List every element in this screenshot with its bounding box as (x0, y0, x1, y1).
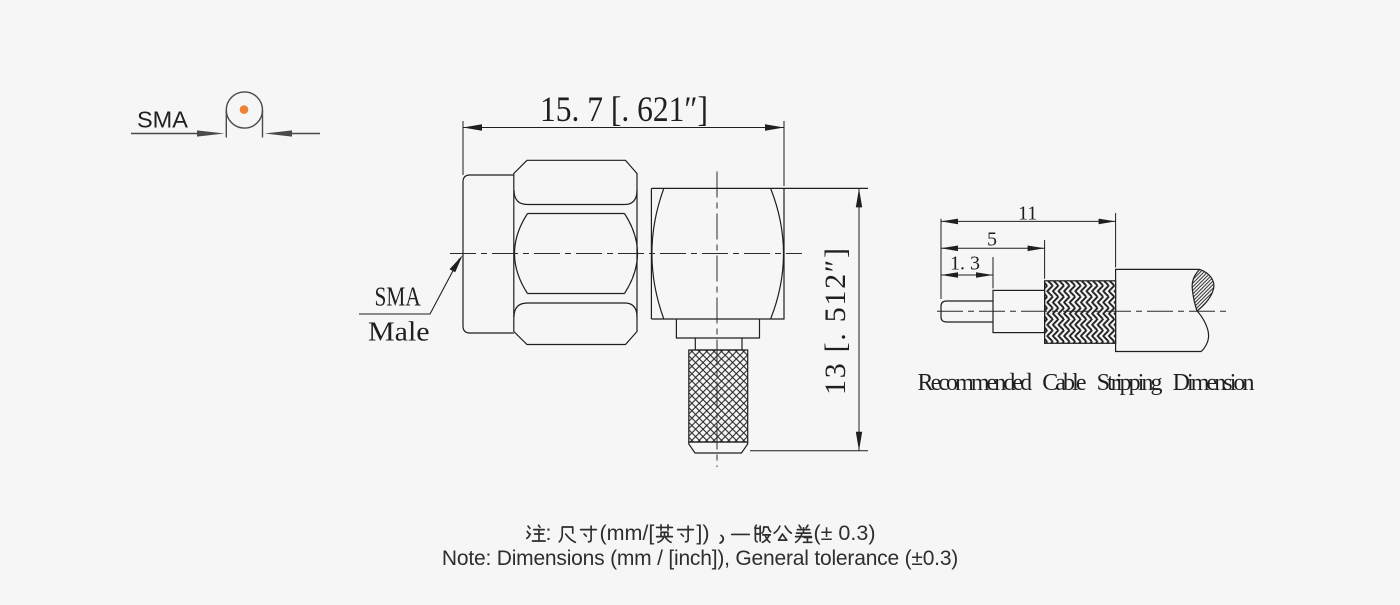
svg-text:13 [. 512″]: 13 [. 512″] (819, 248, 852, 395)
svg-text:11: 11 (1018, 203, 1037, 225)
svg-text:Recommended Cable Stripping Di: Recommended Cable Stripping Dimension (918, 370, 1255, 396)
svg-text:15. 7 [. 621″]: 15. 7 [. 621″] (540, 89, 708, 129)
svg-text:1. 3: 1. 3 (950, 253, 980, 275)
svg-text:SMA: SMA (137, 107, 188, 133)
svg-text:SMA: SMA (375, 282, 422, 312)
svg-text:5: 5 (987, 229, 997, 251)
svg-text:Male: Male (368, 318, 430, 347)
